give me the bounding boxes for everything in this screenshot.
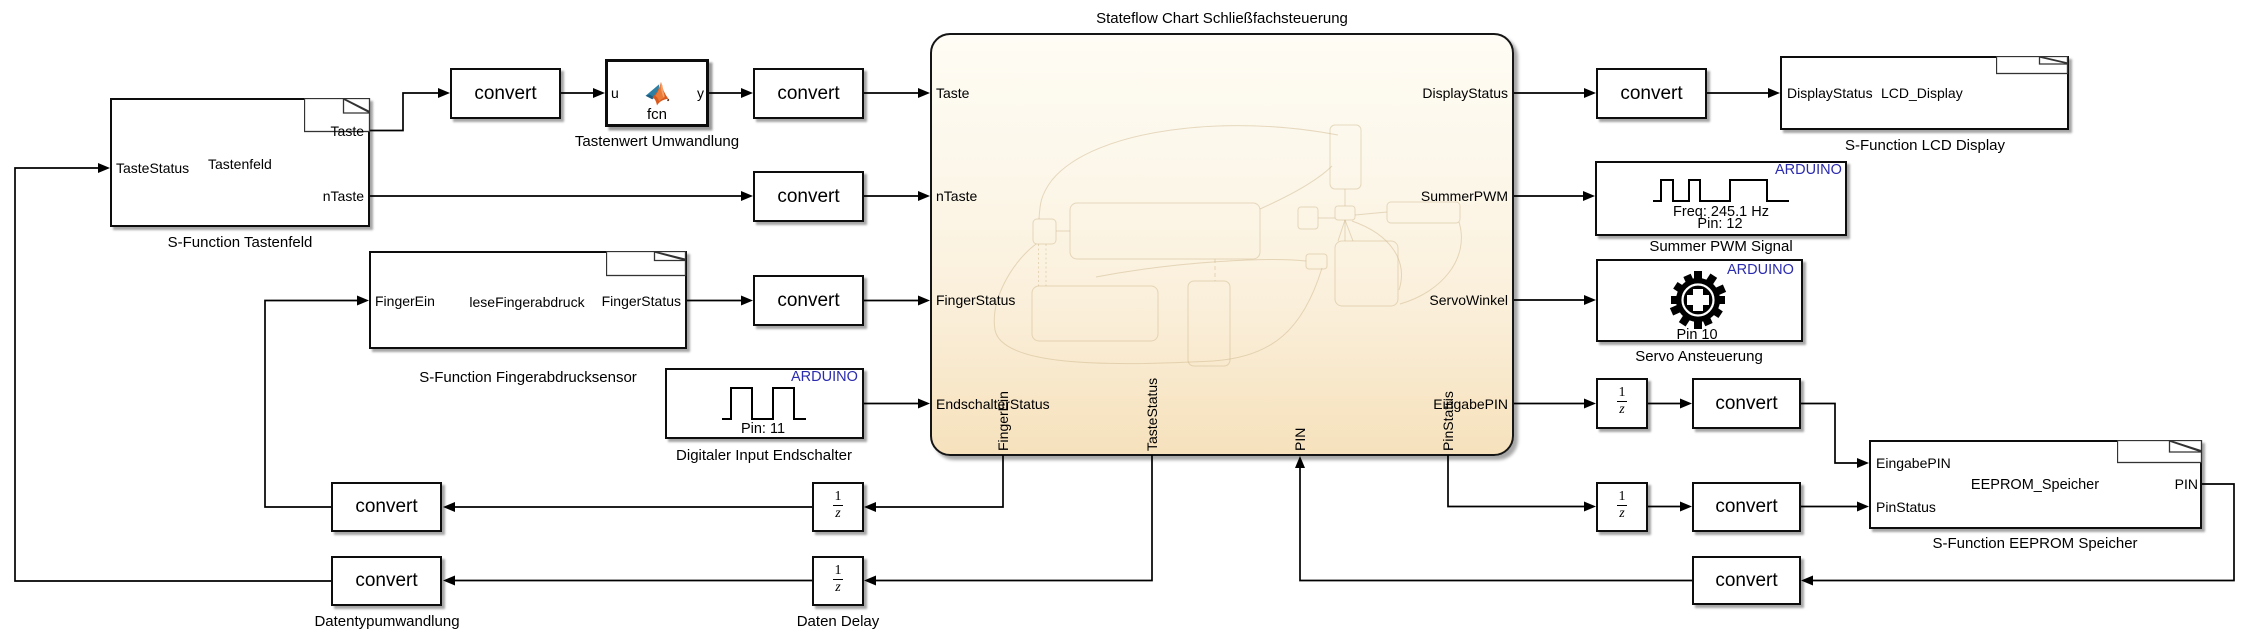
svg-text:PIN: PIN	[1292, 428, 1308, 451]
svg-text:TasteStatus: TasteStatus	[1144, 378, 1160, 451]
